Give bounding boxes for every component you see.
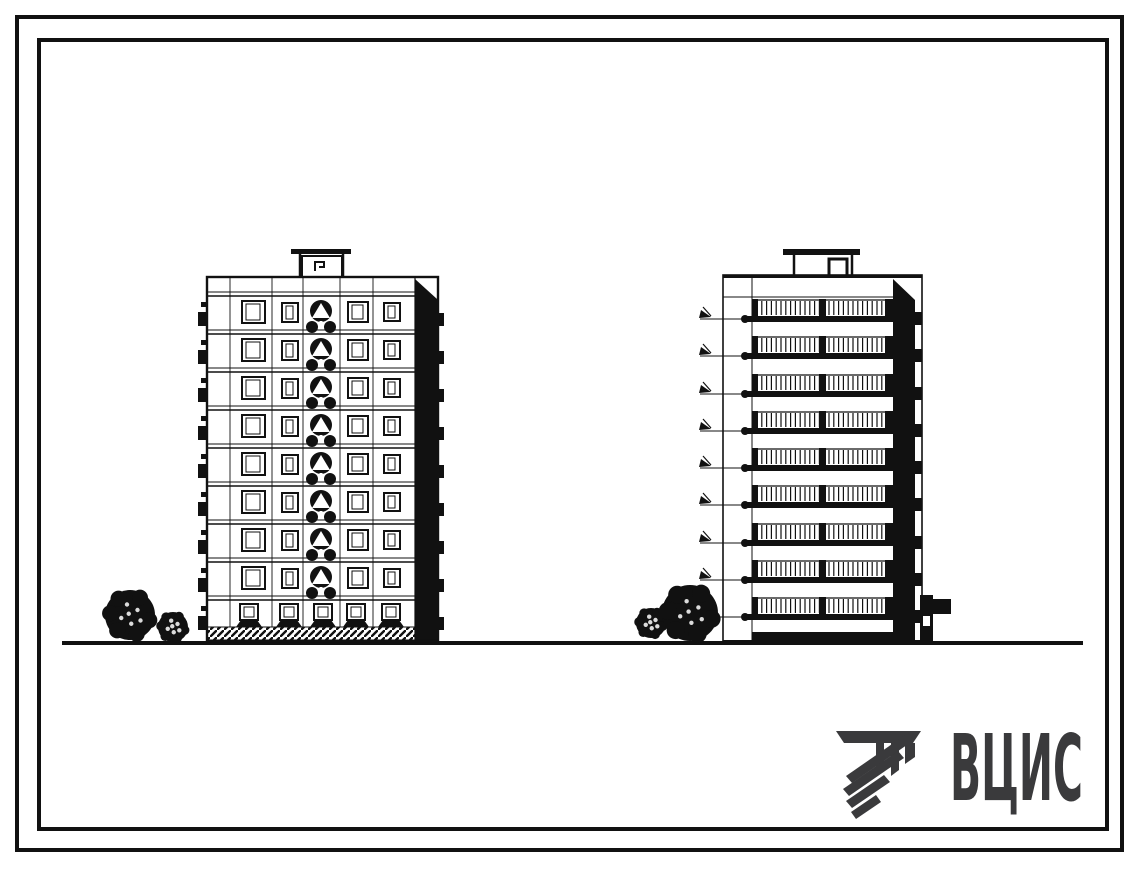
balcony-end: [436, 503, 444, 516]
balcony-end: [198, 312, 206, 326]
balcony-slab: [744, 577, 896, 583]
vcis-logo-text: ВЦИС: [950, 715, 1083, 822]
balcony-end: [198, 388, 206, 402]
drawing-canvas: ВЦИС: [0, 0, 1139, 869]
balcony-slab: [744, 614, 896, 620]
balcony-slab: [744, 391, 896, 397]
balcony-end: [198, 502, 206, 516]
shrubs-left: [102, 590, 189, 643]
balcony-end: [198, 350, 206, 364]
balcony-end: [436, 389, 444, 402]
vcis-logo-icon: [836, 731, 921, 819]
balcony-end: [436, 579, 444, 592]
balcony-end: [436, 427, 444, 440]
drawing-sheet: ВЦИС: [0, 0, 1139, 869]
balcony-end: [436, 465, 444, 478]
shadow-side: [893, 279, 915, 640]
balcony-end: [198, 464, 206, 478]
shrubs-right: [634, 585, 720, 643]
balcony-slab: [744, 428, 896, 434]
logo: ВЦИС: [836, 715, 1083, 822]
vent-pipe: [315, 262, 324, 271]
balcony-end: [198, 426, 206, 440]
building-front-elevation: [198, 249, 444, 641]
balcony-end: [436, 617, 444, 630]
roof-cap: [291, 249, 351, 254]
balcony-slab: [744, 540, 896, 546]
balcony-slab: [744, 353, 896, 359]
balcony-slab: [744, 465, 896, 471]
penthouse: [829, 259, 847, 276]
plinth: [207, 627, 415, 640]
balcony-end: [198, 540, 206, 554]
bush: [659, 585, 721, 643]
bush: [102, 590, 157, 642]
balcony-slab: [744, 502, 896, 508]
building-side-elevation: [699, 249, 951, 642]
balcony-end: [436, 313, 444, 326]
balcony-end: [198, 578, 206, 592]
balcony-end: [198, 616, 206, 630]
balcony-end: [436, 541, 444, 554]
base-strip: [752, 632, 915, 641]
balcony-end: [436, 351, 444, 364]
roof-cap: [783, 249, 860, 255]
shadow-side: [415, 279, 437, 640]
balcony-slab: [744, 316, 896, 322]
bush: [156, 612, 189, 643]
